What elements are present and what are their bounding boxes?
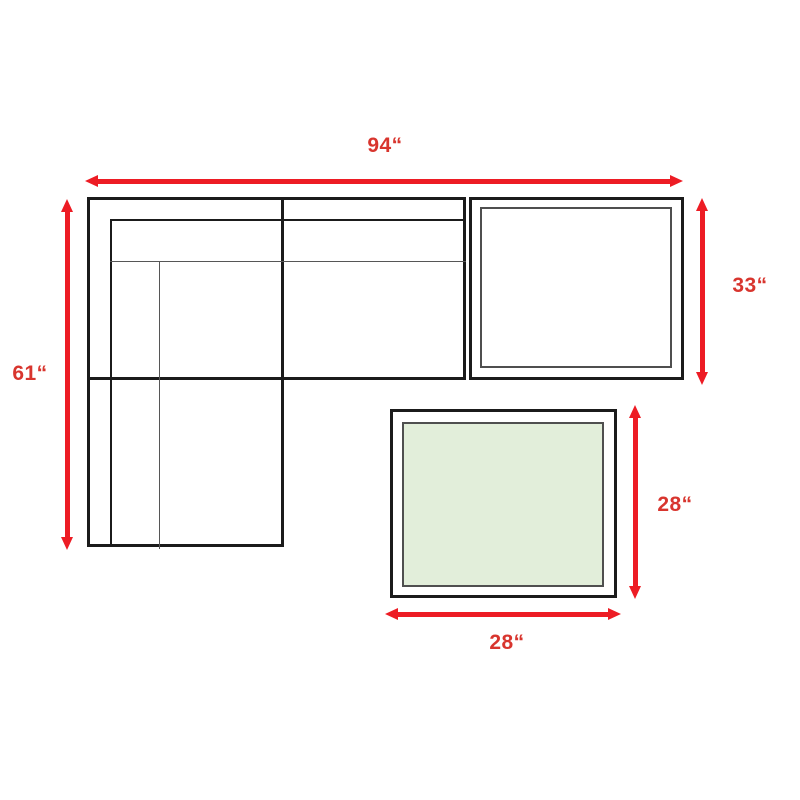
arrow-shaft bbox=[394, 612, 612, 617]
corner-section-inner bbox=[480, 207, 672, 368]
arrow-down-head-icon bbox=[696, 372, 708, 385]
sofa-height-dimension-arrow bbox=[61, 199, 73, 550]
sofa-width-dimension-arrow bbox=[85, 175, 683, 187]
arrow-down-head-icon bbox=[61, 537, 73, 550]
corner-depth-label: 33“ bbox=[722, 273, 778, 298]
ottoman-width-label: 28“ bbox=[477, 630, 537, 655]
arrow-right-head-icon bbox=[670, 175, 683, 187]
ottoman-inner bbox=[402, 422, 604, 587]
sofa-backrest-seam-line bbox=[110, 261, 466, 262]
ottoman-depth-dimension-arrow bbox=[629, 405, 641, 599]
ottoman-depth-label: 28“ bbox=[647, 492, 703, 517]
corner-depth-dimension-arrow bbox=[696, 198, 708, 385]
sofa-backrest-line bbox=[110, 219, 466, 221]
ottoman-width-dimension-arrow bbox=[385, 608, 621, 620]
arrow-shaft bbox=[94, 179, 674, 184]
arrow-shaft bbox=[633, 414, 638, 590]
furniture-dimension-diagram: 94“ 61“ 33“ 28“ 28“ bbox=[0, 0, 800, 800]
sofa-chaise-seam-line bbox=[159, 261, 160, 549]
arrow-down-head-icon bbox=[629, 586, 641, 599]
sofa-armrest-line bbox=[110, 219, 112, 547]
arrow-shaft bbox=[700, 207, 705, 376]
arrow-right-head-icon bbox=[608, 608, 621, 620]
sofa-width-label: 94“ bbox=[345, 133, 425, 158]
sofa-chaise-section bbox=[87, 197, 284, 547]
sofa-height-label: 61“ bbox=[2, 361, 58, 386]
arrow-shaft bbox=[65, 208, 70, 541]
